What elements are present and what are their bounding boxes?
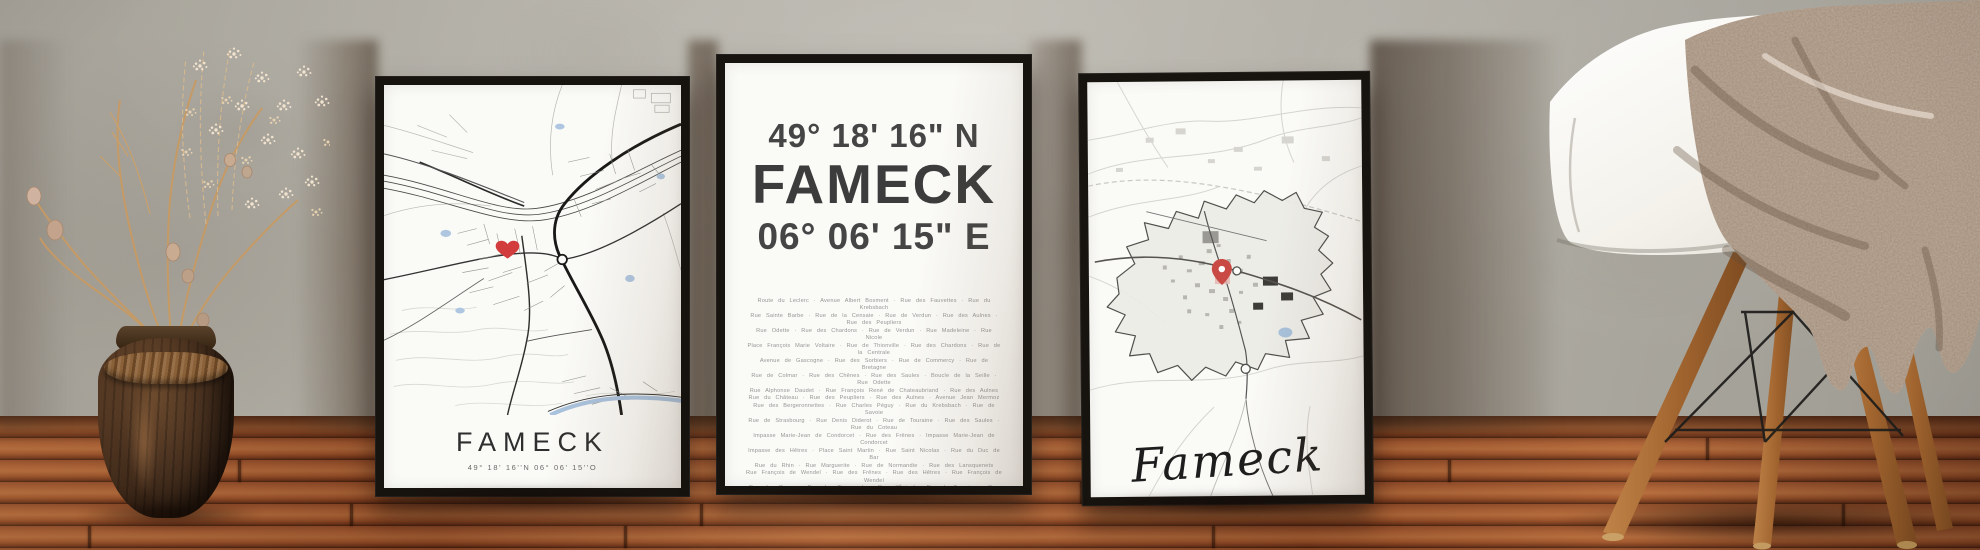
street-line: Route du Leclerc · Avenue Albert Bosment… — [746, 298, 1002, 313]
room-scene: FAMECK 49° 18' 16''N 06° 06' 15''O 49° 1… — [0, 0, 1980, 550]
street-line: Rue du Rhin · Rue Marguerite · Rue de No… — [746, 463, 1002, 470]
poster-shadow — [720, 486, 1032, 506]
street-line: Rue du Château · Rue des Peupliers · Rue… — [746, 395, 1002, 402]
chair — [1545, 0, 1980, 550]
floor-seam — [350, 504, 353, 526]
vase-shadow — [80, 502, 260, 528]
blanket — [1677, 0, 1980, 393]
street-line: Rue Odette · Rue des Chardons · Rue de V… — [746, 328, 1002, 343]
street-line: Avenue de Gascogne · Rue des Sorbiers · … — [746, 358, 1002, 373]
floor-seam — [88, 526, 91, 548]
city-title: FAMECK — [725, 157, 1023, 212]
shadow — [1030, 40, 1082, 430]
floor-seam — [700, 504, 703, 526]
floor-seam — [238, 460, 241, 482]
poster-left-coordinates: 49° 18' 16''N 06° 06' 15''O — [384, 463, 681, 472]
street-line: Rue des Bergeronnettes · Rue Charles Pég… — [746, 403, 1002, 418]
poster-left-frame: FAMECK 49° 18' 16''N 06° 06' 15''O — [375, 76, 690, 497]
dried-flowers — [0, 14, 330, 360]
poster-shadow — [380, 488, 690, 508]
street-line: Rue de Colmar · Rue des Chênes · Rue des… — [746, 373, 1002, 388]
latitude-text: 49° 18' 16" N — [725, 117, 1023, 155]
shadow — [1370, 40, 1560, 430]
street-line: Rue de Strasbourg · Rue Denis Diderot · … — [746, 418, 1002, 433]
street-line: Rue Sainte Barbe · Rue de la Censaie · R… — [746, 313, 1002, 328]
street-line: Rue Alphonse Daudet · Rue François René … — [746, 388, 1002, 395]
street-line: Impasse Marie-Jean de Condorcet · Rue de… — [746, 433, 1002, 448]
floor-seam — [1448, 460, 1451, 482]
poster-middle-paper: 49° 18' 16" N FAMECK 06° 06' 15" E Route… — [725, 63, 1023, 486]
street-line: Place François Marie Voltaire · Rue de T… — [746, 343, 1002, 358]
poster-shadow — [1086, 494, 1372, 514]
street-names-block: Route du Leclerc · Avenue Albert Bosment… — [746, 298, 1002, 486]
vase-highlight — [132, 392, 156, 496]
shadow — [688, 40, 718, 430]
poster-right-frame: Fameck 49° 18' 16'' N 06° 06' 15'' O — [1078, 71, 1374, 507]
poster-middle-frame: 49° 18' 16" N FAMECK 06° 06' 15" E Route… — [716, 54, 1032, 495]
street-line: Rue François de Wendel · Rue des Frênes … — [746, 470, 1002, 485]
poster-left-paper: FAMECK 49° 18' 16''N 06° 06' 15''O — [384, 85, 681, 488]
longitude-text: 06° 06' 15" E — [725, 216, 1023, 258]
street-map — [384, 85, 681, 415]
poster-left-title: FAMECK — [384, 427, 681, 458]
poster-right-paper: Fameck 49° 18' 16'' N 06° 06' 15'' O — [1087, 80, 1365, 497]
street-line: Impasse des Hêtres · Place Saint Martin … — [746, 448, 1002, 463]
vase-rope — [104, 352, 228, 384]
